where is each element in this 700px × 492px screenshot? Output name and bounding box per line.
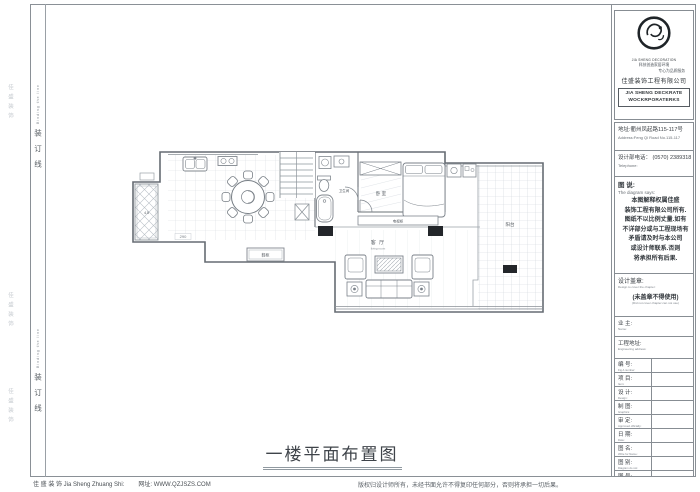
footer-company-name: 佳 盛 装 饰 Jia Sheng Zhuang Shi: xyxy=(33,479,124,488)
row-value xyxy=(652,401,693,414)
dining-set xyxy=(222,171,274,223)
company-name-en-2: WOCKRPORATERKS xyxy=(619,98,689,105)
coffee-table xyxy=(375,256,403,273)
bathroom-fixtures xyxy=(317,156,359,222)
notes-heading-cn: 图 说: xyxy=(618,179,693,189)
table-row: 图 名:Write for Name: xyxy=(615,443,693,457)
row-label-cn: 图 号: xyxy=(618,472,651,477)
binding-label-bottom: Binding the line 装订线 xyxy=(29,328,47,419)
living-room-sublabel: living room xyxy=(371,247,386,251)
dimension-290-label: 290 xyxy=(180,234,187,239)
phone-cn: 设计部电话： (0570) 2389318 xyxy=(618,153,693,161)
drawing-sheet: 佳盛装饰 佳盛装饰 佳盛装饰 Binding the line 装订线 Bind… xyxy=(0,0,700,492)
footer-website: 网址: WWW.QZJSZS.COM xyxy=(138,479,210,488)
title-block-table: 编 号:Fig A number: 项 目:Item: 设 计:Design: … xyxy=(614,358,694,477)
phone-box: 设计部电话： (0570) 2389318 Telephone: xyxy=(614,150,694,177)
logo-slogan-1: 科技创造家居环境 xyxy=(615,63,693,68)
armchair xyxy=(412,255,433,279)
shoe-cabinet-label: 鞋柜 xyxy=(262,252,270,258)
row-label-cn: 审 定: xyxy=(618,416,651,424)
binding-label-en: Binding the line xyxy=(36,328,40,368)
row-label-en: Graphics: xyxy=(618,410,651,414)
binding-label-top: Binding the line 装订线 xyxy=(29,84,47,175)
table-row: 设 计:Design: xyxy=(615,387,693,401)
table-row: 审 定:Approved officially: xyxy=(615,415,693,429)
footer-company-line: 佳 盛 装 饰 Jia Sheng Zhuang Shi: 网址: WWW.QZ… xyxy=(33,479,211,488)
seal-warning-en: (Did not cover chapter can not use) xyxy=(618,301,693,305)
site-label-cn: 工程地址: xyxy=(618,339,693,347)
row-value xyxy=(652,415,693,428)
logo-slogan-2: 专心为品质服务 xyxy=(615,69,693,74)
owner-label-cn: 业 主: xyxy=(618,319,693,327)
row-label-en: Diagram do not: xyxy=(618,466,651,470)
row-label-en: Item: xyxy=(618,382,651,386)
bedroom-furniture xyxy=(360,162,445,217)
table-row: 编 号:Fig A number: xyxy=(615,359,693,373)
table-row: 图 别:Diagram do not: xyxy=(615,457,693,471)
notes-heading-en: The diagram says: xyxy=(618,190,693,195)
row-value xyxy=(652,429,693,442)
row-value xyxy=(652,387,693,400)
company-name-cn: 佳盛装饰工程有限公司 xyxy=(615,76,693,85)
row-value xyxy=(652,443,693,456)
notes-box: 图 说: The diagram says: 本图解释权属佳盛 装饰工程有限公司… xyxy=(614,176,694,274)
address-en: Address:Feng Qi Road No.115-117 xyxy=(618,135,693,140)
seal-box: 设计盖章: Design to cover the chapter: (未盖章不… xyxy=(614,273,694,317)
duct-shaft xyxy=(295,204,309,220)
kitchen-sink xyxy=(183,157,207,171)
drawing-title-text: 一楼平面布置图 xyxy=(263,440,402,470)
row-label-cn: 编 号: xyxy=(618,360,651,368)
row-label-cn: 项 目: xyxy=(618,374,651,382)
row-value xyxy=(652,471,693,477)
table-row: 图 号:Diagram number: xyxy=(615,471,693,477)
living-room-label: 客 厅 xyxy=(371,239,385,246)
seal-label-cn: 设计盖章: xyxy=(618,276,693,285)
footer-copyright: 版权归设计师所有，未经书面允许不得复印任何部分，否则将承担一切后果。 xyxy=(358,480,562,489)
logo-caption: JIA SHENG DECORATION xyxy=(615,58,693,62)
row-label-cn: 日 期: xyxy=(618,430,651,438)
title-block: JIA SHENG DECORATION 科技创造家居环境 专心为品质服务 佳盛… xyxy=(611,4,697,477)
binding-label-en: Binding the line xyxy=(36,84,40,124)
company-logo-box: JIA SHENG DECORATION 科技创造家居环境 专心为品质服务 佳盛… xyxy=(614,10,694,120)
row-label-cn: 制 图: xyxy=(618,402,651,410)
margin-watermark: 佳盛装饰 xyxy=(6,84,14,122)
seal-warning-cn: (未盖章不得使用) xyxy=(618,292,693,301)
address-box: 地址:衢州凤起路115-117号 Address:Feng Qi Road No… xyxy=(614,122,694,151)
side-table-lamp xyxy=(414,282,429,296)
row-label-en: Approved officially: xyxy=(618,424,651,428)
bed xyxy=(403,163,445,217)
staircase xyxy=(279,152,315,198)
margin-watermark: 佳盛装饰 xyxy=(6,292,14,330)
row-value xyxy=(652,373,693,386)
site-label-en: Engineering address: xyxy=(618,347,693,351)
owner-box: 业 主: Name: xyxy=(614,316,694,337)
wash-basin xyxy=(334,156,349,167)
wardrobe xyxy=(360,162,401,175)
row-label-en: Design: xyxy=(618,396,651,400)
row-value xyxy=(652,359,693,372)
bathtub xyxy=(317,195,334,222)
toilet xyxy=(318,176,331,192)
table-row: 项 目:Item: xyxy=(615,373,693,387)
terrace-label: 阳台 xyxy=(506,221,515,228)
balcony-tag-box xyxy=(140,173,154,180)
side-table-lamp xyxy=(347,282,362,296)
armchair xyxy=(345,255,366,279)
bedroom-label: 卧 室 xyxy=(376,190,387,197)
row-value xyxy=(652,457,693,470)
washing-machine xyxy=(319,157,331,169)
table-row: 制 图:Graphics: xyxy=(615,401,693,415)
row-label-cn: 图 别: xyxy=(618,458,651,466)
row-label-cn: 设 计: xyxy=(618,388,651,396)
table-row: 日 期:Date: xyxy=(615,429,693,443)
drawing-title: 一楼平面布置图 xyxy=(252,440,412,470)
margin-watermark: 佳盛装饰 xyxy=(6,388,14,426)
company-logo-icon xyxy=(635,14,673,52)
site-box: 工程地址: Engineering address: xyxy=(614,336,694,359)
sofa xyxy=(366,280,412,298)
cooktop xyxy=(218,157,237,166)
row-label-en: Date: xyxy=(618,438,651,442)
bathroom-label: 卫生间 xyxy=(339,188,350,193)
floor-plan: 客 厅 living room 卧 室 卫生间 阳台 鞋柜 电视柜 4.5 29… xyxy=(95,140,555,322)
binding-label-cn: 装订线 xyxy=(33,129,44,176)
row-label-en: Fig A number: xyxy=(618,368,651,372)
tv-cabinet-label: 电视柜 xyxy=(393,219,404,224)
row-label-cn: 图 名: xyxy=(618,444,651,452)
balcony-area-label: 4.5 xyxy=(144,211,149,215)
address-cn: 地址:衢州凤起路115-117号 xyxy=(618,125,693,133)
phone-en: Telephone: xyxy=(618,163,693,168)
company-name-en-1: JIA SHENG DECKRATE xyxy=(619,91,689,98)
terrace-tiles xyxy=(478,165,543,310)
notes-body: 本图解释权属佳盛 装饰工程有限公司所有. 图纸不以比例丈量.如有 不详部分或与工… xyxy=(618,197,693,264)
owner-label-en: Name: xyxy=(618,327,693,331)
row-label-en: Write for Name: xyxy=(618,452,651,456)
company-name-box: JIA SHENG DECKRATE WOCKRPORATERKS xyxy=(618,88,690,107)
binding-label-cn: 装订线 xyxy=(33,373,44,420)
seal-label-en: Design to cover the chapter: xyxy=(618,285,693,289)
